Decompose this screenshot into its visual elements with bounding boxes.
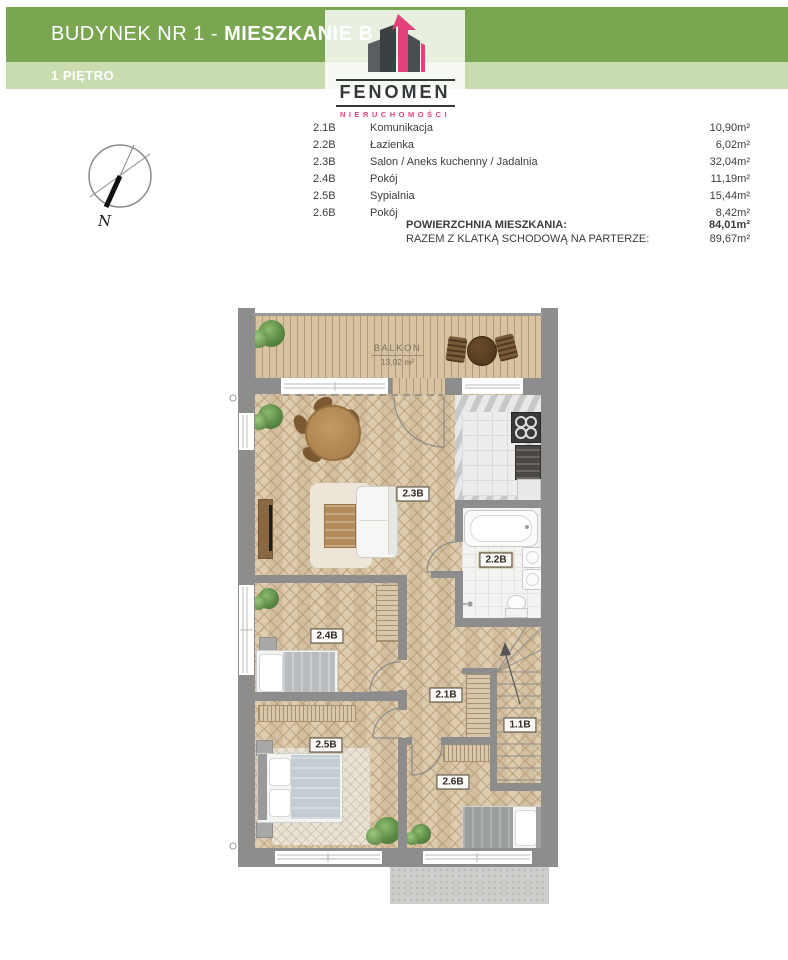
pillow	[269, 789, 291, 817]
wall-bathroom-south	[455, 618, 541, 627]
pillow	[515, 810, 537, 846]
wall-stairwell-west	[490, 672, 497, 787]
hall-closet	[466, 674, 492, 740]
window-left-salon	[239, 413, 254, 450]
room-code: 2.1B	[313, 121, 336, 136]
coffee-table	[324, 504, 356, 548]
dining-table	[305, 405, 361, 461]
table-total2-row: RAZEM Z KLATKĄ SCHODOWĄ NA PARTERZE:89,6…	[313, 232, 750, 247]
pillow	[259, 654, 283, 692]
room-label-room4: 2.4B	[310, 629, 343, 644]
burner	[525, 427, 537, 439]
table-row: 2.3BSalon / Aneks kuchenny / Jadalnia32,…	[313, 155, 750, 170]
blanket	[283, 652, 335, 692]
room-label-hall: 2.1B	[429, 688, 462, 703]
single-bed	[256, 650, 338, 696]
logo-tagline: NIERUCHOMOŚCI	[325, 110, 465, 119]
sofa	[356, 486, 398, 558]
room-label-bedroom: 2.5B	[309, 738, 342, 753]
total2-value: 89,67m²	[710, 232, 750, 247]
logo-buildings-icon	[360, 10, 430, 72]
balcony-plant	[258, 320, 285, 347]
toilet-tank	[505, 608, 528, 618]
nightstand	[256, 822, 273, 838]
basin-bowl	[526, 573, 539, 586]
top-wall-segment	[388, 378, 392, 394]
top-wall-segment	[523, 378, 541, 395]
wall-bedroom-room6	[398, 738, 407, 848]
outer-wall-right	[541, 308, 558, 867]
wall-kitchen-bathroom	[455, 500, 541, 508]
room-area: 15,44m²	[710, 189, 750, 204]
double-bed	[257, 753, 343, 823]
room-code: 2.3B	[313, 155, 336, 170]
room-label-room6: 2.6B	[436, 775, 469, 790]
compass-icon	[89, 145, 151, 207]
gas-stove	[511, 412, 541, 443]
room-code: 2.4B	[313, 172, 336, 187]
total-value: 84,01m²	[709, 218, 750, 233]
total2-label: RAZEM Z KLATKĄ SCHODOWĄ NA PARTERZE:	[406, 232, 649, 247]
balcony-chair	[445, 336, 467, 363]
floor-subtitle: 1 PIĘTRO	[51, 62, 114, 89]
blanket	[291, 755, 340, 819]
washbasin	[522, 547, 543, 568]
bedroom-plant	[374, 817, 401, 844]
wall-stub	[398, 701, 407, 710]
wall-hall-room6	[406, 737, 412, 745]
table-total-row: POWIERZCHNIA MIESZKANIA:84,01m²	[313, 218, 750, 233]
room-area: 10,90m²	[710, 121, 750, 136]
room-area: 6,02m²	[716, 138, 750, 153]
total-label: POWIERZCHNIA MIESZKANIA:	[406, 218, 567, 233]
title-regular: BUDYNEK NR 1 -	[51, 23, 224, 45]
top-wall-segment	[255, 378, 281, 394]
bathtub-inner	[470, 515, 532, 542]
room-area: 32,04m²	[710, 155, 750, 170]
wall-stub-hall	[431, 571, 463, 578]
wall-bathroom-west	[455, 503, 463, 542]
balcony-name: BALKON	[371, 343, 425, 356]
sofa-cushion-line	[359, 520, 387, 521]
room-area: 11,19m²	[710, 172, 750, 187]
room6-wardrobe	[443, 744, 494, 762]
wall-hall-room6	[441, 737, 497, 745]
room-code: 2.5B	[313, 189, 336, 204]
wall-stairwell-south	[490, 783, 541, 791]
wall-room4-bedroom	[255, 692, 406, 701]
room-name: Salon / Aneks kuchenny / Jadalnia	[370, 155, 538, 170]
kitchen-tiles	[462, 412, 518, 496]
room6-plant	[411, 824, 431, 844]
balcony-edge	[253, 313, 543, 316]
room-name: Sypialnia	[370, 189, 415, 204]
floor-plan-sheet: BUDYNEK NR 1 - MIESZKANIE B 1 PIĘTRO FEN…	[0, 0, 788, 960]
buildings-icon	[368, 14, 425, 72]
pillow	[269, 758, 291, 786]
window-bottom-bedroom	[275, 851, 382, 864]
table-row: 2.5BSypialnia15,44m²	[313, 189, 750, 204]
room-label-bathroom: 2.2B	[479, 553, 512, 568]
window-bottom-room6	[423, 851, 532, 864]
single-bed	[462, 806, 543, 851]
bookshelf	[258, 705, 356, 722]
room-label-salon: 2.3B	[396, 487, 429, 502]
blanket	[463, 807, 513, 848]
wall-salon-room4	[255, 575, 406, 583]
window-left-room4	[239, 585, 254, 675]
balcony-label: BALKON 13,02 m²	[355, 338, 440, 367]
wall-room4-hall	[398, 575, 407, 660]
table-row: 2.2BŁazienka6,02m²	[313, 138, 750, 153]
survey-point-markers	[230, 395, 236, 849]
kitchen-counter	[515, 445, 541, 480]
window-balcony-large	[281, 380, 388, 393]
room-code: 2.2B	[313, 138, 336, 153]
compass-north-label: N	[98, 212, 124, 234]
table-row: 2.4BPokój11,19m²	[313, 172, 750, 187]
logo-name: FENOMEN	[336, 79, 455, 107]
company-logo: FENOMEN NIERUCHOMOŚCI	[325, 10, 465, 118]
top-wall-segment	[445, 378, 462, 395]
basin-bowl	[526, 551, 539, 564]
window-kitchen	[462, 381, 523, 393]
table-row: 2.1BKomunikacja10,90m²	[313, 121, 750, 136]
room-name: Łazienka	[370, 138, 414, 153]
room4-plant	[258, 588, 279, 609]
headboard	[258, 754, 267, 820]
tv-screen	[269, 505, 272, 551]
washbasin	[522, 569, 543, 590]
living-room-plant	[258, 404, 283, 429]
room-name: Komunikacja	[370, 121, 433, 136]
bathtub	[464, 510, 538, 547]
balcony-table	[467, 336, 497, 366]
balcony-area: 13,02 m²	[355, 357, 440, 367]
ground-terrace-below	[390, 867, 549, 904]
room-name: Pokój	[370, 172, 398, 187]
room-label-stairs: 1.1B	[503, 718, 536, 733]
